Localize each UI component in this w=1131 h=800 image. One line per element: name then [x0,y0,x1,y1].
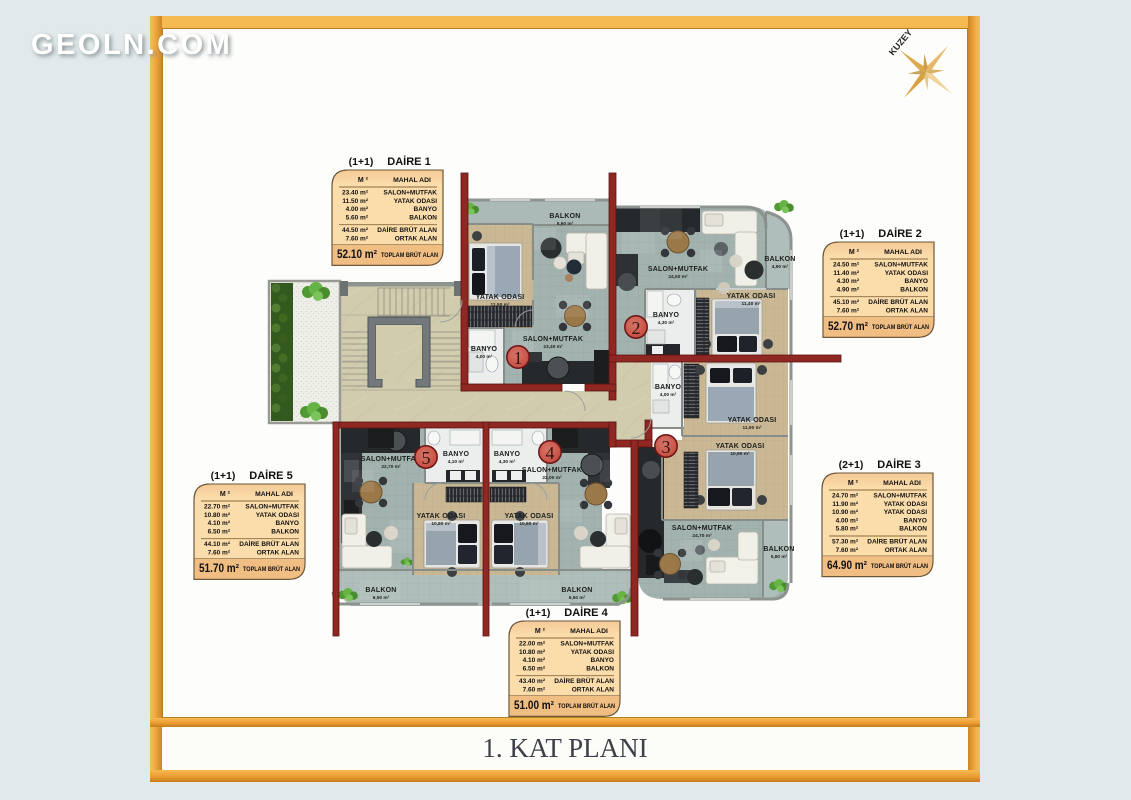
svg-text:5,80 m²: 5,80 m² [771,554,788,560]
svg-text:4.00 m²: 4.00 m² [346,206,369,213]
svg-text:MAHAL ADI: MAHAL ADI [393,177,431,184]
svg-text:(1+1): (1+1) [349,156,374,168]
svg-text:YATAK ODASI: YATAK ODASI [505,513,554,520]
svg-text:7.60 m²: 7.60 m² [346,236,369,243]
svg-text:51.00 m²: 51.00 m² [514,700,554,712]
svg-text:4,00 m²: 4,00 m² [476,354,493,360]
svg-text:4,90 m²: 4,90 m² [772,264,789,270]
svg-text:M ²: M ² [535,628,546,635]
svg-text:10,80 m²: 10,80 m² [519,521,539,527]
svg-text:24.50 m²: 24.50 m² [833,262,860,269]
svg-text:DAİRE 1: DAİRE 1 [387,155,430,168]
svg-text:TOPLAM BRÜT ALAN: TOPLAM BRÜT ALAN [381,250,438,259]
svg-text:10,90 m²: 10,90 m² [730,451,750,457]
svg-text:SALON+MUTFAK: SALON+MUTFAK [874,262,928,269]
svg-text:DAİRE BRÜT ALAN: DAİRE BRÜT ALAN [867,537,927,546]
svg-text:10.80 m²: 10.80 m² [519,649,546,656]
svg-text:YATAK ODASI: YATAK ODASI [885,270,928,277]
svg-text:YATAK ODASI: YATAK ODASI [884,501,927,508]
svg-text:10,80 m²: 10,80 m² [431,521,451,527]
svg-text:BANYO: BANYO [653,312,680,319]
svg-text:11.50 m²: 11.50 m² [342,198,368,205]
svg-text:YATAK ODASI: YATAK ODASI [417,513,466,520]
svg-text:10.80 m²: 10.80 m² [204,512,231,519]
svg-text:DAİRE 5: DAİRE 5 [249,469,292,482]
svg-text:ORTAK ALAN: ORTAK ALAN [257,550,300,557]
svg-text:6.50 m²: 6.50 m² [208,528,231,535]
svg-text:MAHAL ADI: MAHAL ADI [255,491,293,498]
svg-text:11,50 m²: 11,50 m² [491,302,510,308]
svg-text:BALKON: BALKON [549,213,580,220]
svg-text:SALON+MUTFAK: SALON+MUTFAK [383,190,437,197]
svg-text:SALON+MUTFAK: SALON+MUTFAK [361,456,421,463]
svg-text:4,30 m²: 4,30 m² [658,320,675,326]
svg-text:SALON+MUTFAK: SALON+MUTFAK [672,525,732,532]
svg-text:YATAK ODASI: YATAK ODASI [884,509,927,516]
svg-text:4.00 m²: 4.00 m² [836,517,859,524]
svg-text:YATAK ODASI: YATAK ODASI [727,293,776,300]
svg-text:22.00 m²: 22.00 m² [519,641,546,648]
svg-text:TOPLAM BRÜT ALAN: TOPLAM BRÜT ALAN [871,561,928,570]
svg-text:4,00 m²: 4,00 m² [660,392,677,398]
svg-text:(2+1): (2+1) [839,459,864,471]
svg-text:5.60 m²: 5.60 m² [346,214,369,221]
svg-text:4.10 m²: 4.10 m² [523,657,546,664]
svg-text:BANYO: BANYO [904,517,927,524]
svg-text:44.10 m²: 44.10 m² [204,541,231,548]
svg-text:4: 4 [546,443,555,463]
svg-text:22,00 m²: 22,00 m² [542,475,562,481]
svg-text:1: 1 [514,348,523,368]
svg-text:43.40 m²: 43.40 m² [519,678,546,685]
svg-text:6.50 m²: 6.50 m² [523,665,546,672]
svg-text:BANYO: BANYO [494,451,521,458]
svg-text:BALKON: BALKON [365,587,396,594]
svg-text:3: 3 [662,437,671,457]
svg-text:TOPLAM BRÜT ALAN: TOPLAM BRÜT ALAN [558,701,615,710]
svg-text:7.60 m²: 7.60 m² [523,687,546,694]
svg-text:4,30 m²: 4,30 m² [499,459,516,465]
svg-text:11,90 m²: 11,90 m² [743,425,762,431]
svg-text:BANYO: BANYO [591,657,614,664]
svg-text:24.70 m²: 24.70 m² [832,493,859,500]
svg-text:5.80 m²: 5.80 m² [836,526,859,533]
svg-text:57.30 m²: 57.30 m² [832,539,859,546]
svg-text:BANYO: BANYO [443,451,470,458]
svg-text:SALON+MUTFAK: SALON+MUTFAK [523,336,583,343]
svg-text:45.10 m²: 45.10 m² [833,299,860,306]
svg-text:(1+1): (1+1) [211,470,236,482]
svg-text:BALKON: BALKON [561,587,592,594]
svg-text:52.10 m²: 52.10 m² [337,249,377,261]
svg-text:1. KAT PLANI: 1. KAT PLANI [482,733,647,763]
svg-text:4.90 m²: 4.90 m² [837,286,860,293]
svg-text:4,10 m²: 4,10 m² [448,459,465,465]
svg-text:22.70 m²: 22.70 m² [204,504,231,511]
svg-text:M ²: M ² [220,491,231,498]
svg-text:SALON+MUTFAK: SALON+MUTFAK [873,493,927,500]
svg-text:SALON+MUTFAK: SALON+MUTFAK [648,266,708,273]
svg-text:BANYO: BANYO [655,384,682,391]
svg-text:22,70 m²: 22,70 m² [381,464,401,470]
svg-text:MAHAL ADI: MAHAL ADI [883,480,921,487]
svg-text:MAHAL ADI: MAHAL ADI [884,249,922,256]
svg-text:SALON+MUTFAK: SALON+MUTFAK [245,504,299,511]
svg-text:M ²: M ² [849,249,860,256]
svg-text:ORTAK ALAN: ORTAK ALAN [885,547,928,554]
svg-text:YATAK ODASI: YATAK ODASI [716,443,765,450]
svg-text:5,60 m²: 5,60 m² [557,221,574,227]
svg-text:BALKON: BALKON [764,256,795,263]
svg-text:52.70 m²: 52.70 m² [828,321,868,333]
svg-text:4.10 m²: 4.10 m² [208,520,231,527]
svg-text:(1+1): (1+1) [840,228,865,240]
svg-text:M ²: M ² [848,480,859,487]
svg-text:23,40 m²: 23,40 m² [543,344,563,350]
svg-text:M ²: M ² [358,177,369,184]
svg-text:11,40 m²: 11,40 m² [742,301,761,307]
svg-text:BANYO: BANYO [471,346,498,353]
svg-text:BALKON: BALKON [586,665,614,672]
svg-text:BALKON: BALKON [899,526,927,533]
svg-text:6,50 m²: 6,50 m² [569,595,586,601]
svg-text:4.30 m²: 4.30 m² [837,278,860,285]
svg-text:DAİRE 3: DAİRE 3 [877,458,920,471]
svg-text:GEOLN.COM: GEOLN.COM [31,29,232,61]
svg-text:44.50 m²: 44.50 m² [342,227,369,234]
svg-text:BALKON: BALKON [409,214,437,221]
svg-text:BANYO: BANYO [414,206,437,213]
svg-text:6,50 m²: 6,50 m² [373,595,390,601]
svg-text:24,50 m²: 24,50 m² [668,274,688,280]
svg-text:7.60 m²: 7.60 m² [837,308,860,315]
svg-text:SALON+MUTFAK: SALON+MUTFAK [560,641,614,648]
svg-text:(1+1): (1+1) [526,607,551,619]
svg-text:YATAK ODASI: YATAK ODASI [256,512,299,519]
svg-text:DAİRE BRÜT ALAN: DAİRE BRÜT ALAN [239,539,299,548]
svg-text:DAİRE 2: DAİRE 2 [878,227,921,240]
svg-text:BALKON: BALKON [271,528,299,535]
svg-text:TOPLAM BRÜT ALAN: TOPLAM BRÜT ALAN [872,322,929,331]
svg-text:TOPLAM BRÜT ALAN: TOPLAM BRÜT ALAN [243,564,300,573]
svg-text:24,70 m²: 24,70 m² [692,533,712,539]
svg-text:5: 5 [422,448,431,468]
svg-text:11.90 m²: 11.90 m² [832,501,858,508]
svg-text:DAİRE 4: DAİRE 4 [564,606,608,619]
svg-text:64.90 m²: 64.90 m² [827,560,867,572]
svg-text:7.60 m²: 7.60 m² [208,550,231,557]
svg-text:10.90 m²: 10.90 m² [832,509,859,516]
svg-text:51.70 m²: 51.70 m² [199,563,239,575]
svg-text:YATAK ODASI: YATAK ODASI [571,649,614,656]
svg-text:ORTAK ALAN: ORTAK ALAN [395,236,438,243]
svg-text:BANYO: BANYO [905,278,928,285]
svg-text:ORTAK ALAN: ORTAK ALAN [886,308,929,315]
svg-text:YATAK ODASI: YATAK ODASI [728,417,777,424]
svg-text:23.40 m²: 23.40 m² [342,190,369,197]
svg-text:7.60 m²: 7.60 m² [836,547,859,554]
svg-text:YATAK ODASI: YATAK ODASI [476,294,525,301]
svg-text:SALON+MUTFAK: SALON+MUTFAK [522,467,582,474]
svg-text:DAİRE BRÜT ALAN: DAİRE BRÜT ALAN [554,676,614,685]
svg-text:DAİRE BRÜT ALAN: DAİRE BRÜT ALAN [868,297,928,306]
svg-text:DAİRE BRÜT ALAN: DAİRE BRÜT ALAN [377,225,437,234]
svg-text:2: 2 [632,318,641,338]
svg-text:BANYO: BANYO [276,520,299,527]
svg-text:YATAK ODASI: YATAK ODASI [394,198,437,205]
svg-text:BALKON: BALKON [763,546,794,553]
svg-text:ORTAK ALAN: ORTAK ALAN [572,687,615,694]
svg-text:BALKON: BALKON [900,286,928,293]
svg-text:11.40 m²: 11.40 m² [833,270,859,277]
svg-text:MAHAL ADI: MAHAL ADI [570,628,608,635]
